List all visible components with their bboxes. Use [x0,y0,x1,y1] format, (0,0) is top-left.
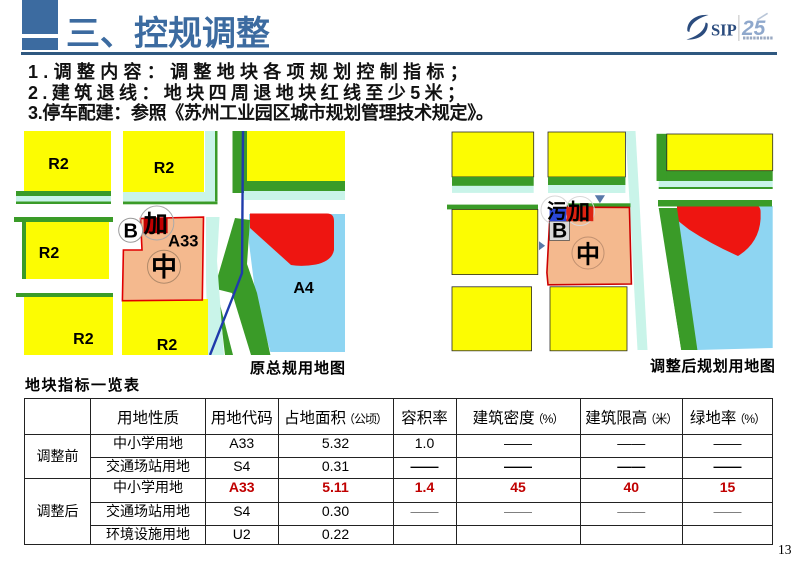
svg-text:R2: R2 [48,156,69,173]
svg-text:R2: R2 [73,331,94,348]
svg-text:A33: A33 [168,233,198,251]
svg-text:SIP: SIP [711,21,737,40]
svg-text:R2: R2 [157,337,178,354]
svg-text:B: B [123,221,137,243]
svg-text:中: 中 [151,252,177,282]
svg-text:加: 加 [567,200,590,225]
svg-text:R2: R2 [154,160,175,177]
svg-text:A4: A4 [293,280,314,297]
svg-text:加: 加 [144,211,168,238]
svg-text:污: 污 [547,200,567,223]
svg-text:中: 中 [576,242,600,269]
svg-text:R2: R2 [39,245,60,262]
